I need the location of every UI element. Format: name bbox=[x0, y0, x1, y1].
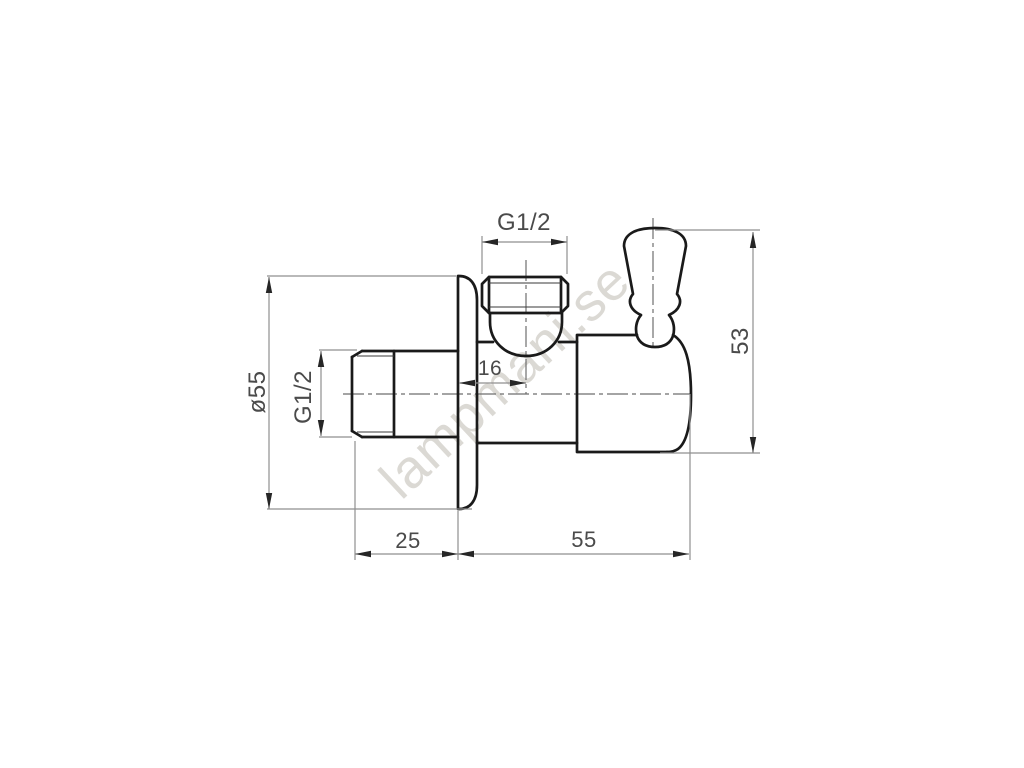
label-wall-to-port-center: 16 bbox=[478, 357, 502, 380]
arrow-16-right bbox=[510, 380, 526, 386]
label-overall-height: 53 bbox=[727, 327, 754, 355]
valve-outline bbox=[352, 228, 691, 509]
flange-outline bbox=[458, 276, 477, 509]
arrow-inlet-thread-up bbox=[318, 351, 324, 367]
arrow-55-left bbox=[458, 551, 474, 557]
label-inlet-thread: G1/2 bbox=[290, 370, 317, 424]
label-flange-diameter: ø55 bbox=[244, 371, 271, 414]
dimension-lines bbox=[267, 230, 760, 560]
top-nut-outline bbox=[482, 277, 568, 313]
arrow-25-right bbox=[442, 551, 458, 557]
arrow-top-thread-left bbox=[482, 239, 498, 245]
arrow-top-thread-right bbox=[551, 239, 567, 245]
arrow-flange-dia-down bbox=[266, 493, 272, 509]
label-body-depth: 55 bbox=[571, 527, 596, 552]
arrow-25-left bbox=[355, 551, 371, 557]
arrow-flange-dia-up bbox=[266, 277, 272, 293]
arrow-16-left bbox=[459, 380, 475, 386]
label-inlet-projection: 25 bbox=[395, 528, 420, 553]
arrow-55-right bbox=[673, 551, 689, 557]
label-top-port-thread: G1/2 bbox=[497, 209, 551, 236]
technical-drawing-page: lampmani.se bbox=[0, 0, 1024, 768]
arrow-height-up bbox=[750, 232, 756, 248]
arrow-inlet-thread-down bbox=[318, 420, 324, 436]
handle-outline bbox=[624, 228, 686, 347]
angle-valve-drawing: G1/2 16 ø55 G1/2 53 25 55 bbox=[0, 0, 1024, 768]
arrow-height-down bbox=[750, 437, 756, 453]
